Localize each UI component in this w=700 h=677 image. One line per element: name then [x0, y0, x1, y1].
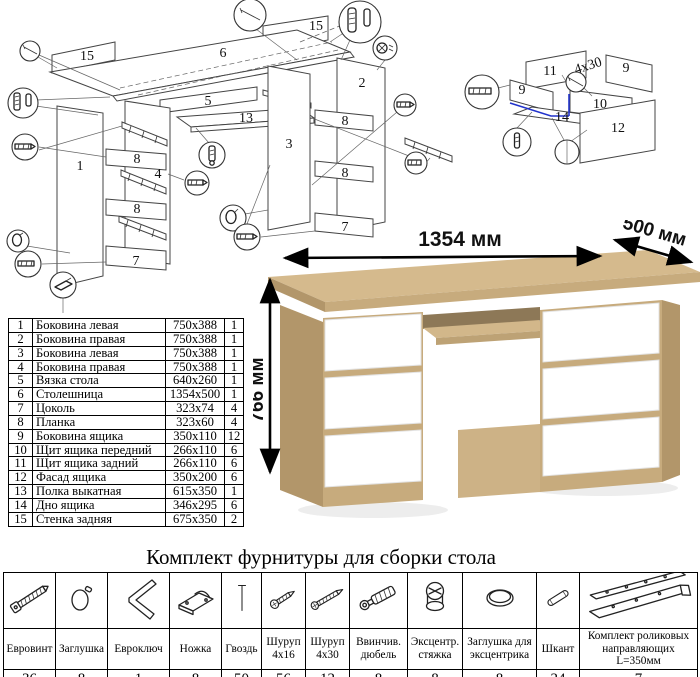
screw-dowel-icon	[352, 573, 406, 623]
part-number-cell: 13	[9, 485, 33, 499]
back-panel-kneehole	[458, 424, 540, 498]
part-name-cell: Боковина левая	[33, 346, 166, 360]
part-number-cell: 8	[9, 415, 33, 429]
part-number-cell: 10	[9, 443, 33, 457]
euro-screw-icon	[6, 573, 54, 623]
hardware-qty: 7	[580, 669, 698, 677]
part-label: 4	[155, 167, 162, 182]
callout-nail-top-left	[20, 41, 40, 61]
part-name-cell: Планка	[33, 415, 166, 429]
table-row: 14 Дно ящика 346x295 6	[9, 498, 244, 512]
part-label: 11	[543, 64, 556, 79]
part-size-cell: 750x388	[166, 319, 225, 333]
part-qty-cell: 1	[225, 346, 244, 360]
part-label: 10	[593, 97, 607, 112]
part-name-cell: Боковина ящика	[33, 429, 166, 443]
hardware-name: Евровинт	[4, 629, 56, 670]
callout-nail-top-middle	[234, 0, 266, 31]
part-number-cell: 7	[9, 402, 33, 416]
dimension-width: 1354 мм	[285, 228, 600, 258]
part-size-cell: 615x350	[166, 485, 225, 499]
hardware-name: Гвоздь	[222, 629, 262, 670]
part-label: 1	[77, 159, 84, 174]
part-label: 8	[342, 114, 349, 129]
drawer-front	[543, 417, 659, 476]
part-number-cell: 6	[9, 388, 33, 402]
hardware-name: Шуруп 4x16	[262, 629, 306, 670]
part-qty-cell: 12	[225, 429, 244, 443]
part-name-cell: Боковина правая	[33, 360, 166, 374]
callout-dowel-cap-left	[8, 88, 38, 118]
part-qty-cell: 6	[225, 498, 244, 512]
table-row: 7 Цоколь 323x74 4	[9, 402, 244, 416]
callout-cap-bottom-left	[7, 230, 29, 252]
part-size-cell: 750x388	[166, 360, 225, 374]
part-number-cell: 2	[9, 332, 33, 346]
part-size-cell: 750x388	[166, 332, 225, 346]
height-dimension-label: 766 мм	[253, 357, 268, 422]
part-number-cell: 5	[9, 374, 33, 388]
hardware-name: Ввинчив. дюбель	[350, 629, 408, 670]
part-label: 8	[342, 166, 349, 181]
part-label: 2	[359, 76, 366, 91]
callout-empty	[555, 140, 579, 164]
nail-icon	[224, 573, 260, 623]
cam-lock-icon	[412, 573, 458, 623]
callout-cam-screw	[373, 36, 397, 60]
part-size-cell: 350x110	[166, 429, 225, 443]
callout-nail	[503, 128, 531, 156]
hardware-qty: 8	[463, 669, 537, 677]
callout-screw-middle	[185, 171, 209, 195]
part-label: 15	[80, 49, 94, 64]
screw-short-icon	[264, 573, 304, 623]
part-label: 7	[133, 254, 140, 269]
cap-icon	[58, 573, 106, 623]
hardware-qty: 8	[56, 669, 108, 677]
hardware-name: Комплект роликовых направляющих L=350мм	[580, 629, 698, 670]
part-name-cell: Щит ящика передний	[33, 443, 166, 457]
part-name-cell: Вязка стола	[33, 374, 166, 388]
hardware-kit-title: Комплект фурнитуры для сборки стола	[0, 545, 642, 570]
table-row: 11 Щит ящика задний 266x110 6	[9, 457, 244, 471]
part-label: 14	[555, 110, 569, 125]
hardware-table: Евровинт Заглушка Евроключ Ножка Гвоздь …	[3, 572, 698, 677]
part-label: 8	[134, 152, 141, 167]
parts-table: 1 Боковина левая 750x388 1 2 Боковина пр…	[8, 318, 244, 527]
hardware-qty: 50	[222, 669, 262, 677]
part-qty-cell: 4	[225, 415, 244, 429]
drawer-front	[543, 360, 659, 419]
table-row: 12 Фасад ящика 350x200 6	[9, 471, 244, 485]
part-qty-cell: 6	[225, 443, 244, 457]
part-qty-cell: 1	[225, 332, 244, 346]
part-label: 15	[309, 19, 323, 34]
hardware-name: Эксцентр. стяжка	[408, 629, 463, 670]
callout-screw-bottom-left	[15, 251, 41, 277]
cam-cap-icon	[470, 573, 530, 623]
parts-table-body: 1 Боковина левая 750x388 1 2 Боковина пр…	[9, 319, 244, 527]
part-number-cell: 9	[9, 429, 33, 443]
part-name-cell: Полка выкатная	[33, 485, 166, 499]
table-row: 13 Полка выкатная 615x350 1	[9, 485, 244, 499]
hardware-name: Ножка	[170, 629, 222, 670]
drawer-front	[325, 372, 421, 429]
hardware-qty: 12	[306, 669, 350, 677]
part-label: 5	[205, 94, 212, 109]
part-size-cell: 323x74	[166, 402, 225, 416]
hardware-qty: 8	[170, 669, 222, 677]
hardware-name: Заглушка	[56, 629, 108, 670]
hardware-qty: 8	[350, 669, 408, 677]
part-size-cell: 266x110	[166, 443, 225, 457]
hardware-qty: 56	[262, 669, 306, 677]
part-qty-cell: 1	[225, 374, 244, 388]
part-size-cell: 640x260	[166, 374, 225, 388]
part-label: 8	[134, 202, 141, 217]
desk-render: 1354 мм 500 мм 766 мм	[253, 220, 700, 542]
part-qty-cell: 1	[225, 388, 244, 402]
part-qty-cell: 2	[225, 512, 244, 526]
part-number-cell: 12	[9, 471, 33, 485]
part-number-cell: 14	[9, 498, 33, 512]
hardware-names-row: Евровинт Заглушка Евроключ Ножка Гвоздь …	[4, 629, 698, 670]
table-row: 9 Боковина ящика 350x110 12	[9, 429, 244, 443]
table-row: 4 Боковина правая 750x388 1	[9, 360, 244, 374]
part-qty-cell: 1	[225, 319, 244, 333]
hardware-qty: 8	[408, 669, 463, 677]
part-qty-cell: 1	[225, 360, 244, 374]
part-label: 12	[611, 121, 625, 136]
callout-screw-left	[12, 134, 38, 160]
part-number-cell: 4	[9, 360, 33, 374]
part-qty-cell: 6	[225, 457, 244, 471]
part-number-cell: 1	[9, 319, 33, 333]
part-name-cell: Дно ящика	[33, 498, 166, 512]
part-qty-cell: 6	[225, 471, 244, 485]
part-name-cell: Щит ящика задний	[33, 457, 166, 471]
hardware-qty: 24	[537, 669, 580, 677]
part-label: 9	[519, 83, 526, 98]
hardware-qty-row: 36 8 1 8 50 56 12 8 8 8 24 7	[4, 669, 698, 677]
depth-dimension-label: 500 мм	[620, 220, 688, 251]
drawer-front	[325, 314, 421, 371]
callout-dowel-middle	[199, 142, 225, 168]
width-dimension-label: 1354 мм	[418, 228, 502, 251]
table-row: 8 Планка 323x60 4	[9, 415, 244, 429]
callout-screw-right-top	[394, 94, 416, 116]
table-row: 15 Стенка задняя 675x350 2	[9, 512, 244, 526]
part-qty-cell: 1	[225, 485, 244, 499]
part-name-cell: Столешница	[33, 388, 166, 402]
part-number-cell: 11	[9, 457, 33, 471]
table-row: 3 Боковина левая 750x388 1	[9, 346, 244, 360]
part-size-cell: 1354x500	[166, 388, 225, 402]
foot-icon	[172, 573, 220, 623]
hex-key-icon	[110, 573, 168, 623]
part-name-cell: Цоколь	[33, 402, 166, 416]
left-pedestal-side	[280, 305, 323, 507]
part-size-cell: 346x295	[166, 498, 225, 512]
drawer-front	[543, 303, 659, 362]
part-label: 9	[623, 61, 630, 76]
part-number-cell: 15	[9, 512, 33, 526]
screw-long-icon	[308, 573, 348, 623]
assembly-instruction-sheet: 15 6 15 5 13 1 4 8 8 7 3 2 8 8 7	[0, 0, 700, 677]
table-row: 1 Боковина левая 750x388 1	[9, 319, 244, 333]
hardware-name: Шуруп 4x30	[306, 629, 350, 670]
part-label: 3	[286, 137, 293, 152]
part-size-cell: 750x388	[166, 346, 225, 360]
part-size-cell: 350x200	[166, 471, 225, 485]
drawer-front	[325, 430, 421, 487]
table-row: 6 Столешница 1354x500 1	[9, 388, 244, 402]
part-qty-cell: 4	[225, 402, 244, 416]
part-size-cell: 266x110	[166, 457, 225, 471]
hardware-name: Евроключ	[108, 629, 170, 670]
part-name-cell: Фасад ящика	[33, 471, 166, 485]
part-label: 6	[220, 46, 227, 61]
table-row: 10 Щит ящика передний 266x110 6	[9, 443, 244, 457]
part-size-cell: 675x350	[166, 512, 225, 526]
callout-leg	[50, 272, 76, 298]
hardware-name: Заглушка для эксцентрика	[463, 629, 537, 670]
roller-guides-icon	[583, 573, 695, 623]
part-label: 13	[239, 111, 253, 126]
part-size-cell: 323x60	[166, 415, 225, 429]
table-row: 2 Боковина правая 750x388 1	[9, 332, 244, 346]
part-name-cell: Боковина левая	[33, 319, 166, 333]
hardware-qty: 36	[4, 669, 56, 677]
part-number-cell: 3	[9, 346, 33, 360]
drawer-assembly-diagram: 4x30 11 9 9 10 14 12	[452, 30, 700, 185]
wood-dowel-icon	[538, 573, 578, 623]
callout-dowel-cap-top-right	[339, 1, 381, 43]
part-1-side-panel	[57, 106, 103, 284]
right-pedestal-side	[662, 300, 680, 482]
table-row: 5 Вязка стола 640x260 1	[9, 374, 244, 388]
callout-guide-rail	[465, 75, 499, 109]
callout-screw-right-bottom	[405, 152, 427, 174]
hardware-icons-row	[4, 573, 698, 629]
dimension-height: 766 мм	[253, 280, 270, 472]
hardware-name: Шкант	[537, 629, 580, 670]
part-name-cell: Боковина правая	[33, 332, 166, 346]
hardware-qty: 1	[108, 669, 170, 677]
part-name-cell: Стенка задняя	[33, 512, 166, 526]
